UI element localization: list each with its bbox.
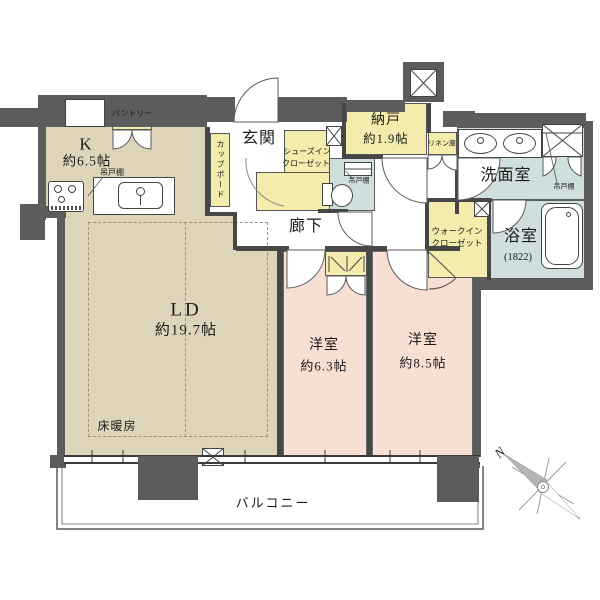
balcony-label: バルコニー xyxy=(236,497,311,510)
compass-icon xyxy=(504,454,580,519)
wall-band-right-of-shaft xyxy=(443,111,475,127)
bedroom1-label: 洋室 xyxy=(309,339,339,353)
bath-label: 浴室 xyxy=(504,229,538,245)
wall-nando-right xyxy=(427,103,431,133)
wall-genkan-top-right xyxy=(277,97,347,122)
bedroom2-area-label: 約8.5帖 xyxy=(399,357,446,370)
bedroom1-closet xyxy=(325,251,367,276)
wall-genkan-top-left xyxy=(205,97,235,122)
shoe-closet-shaft xyxy=(326,126,342,146)
stove-burner-2 xyxy=(68,185,76,193)
wall-right xyxy=(584,121,593,288)
front-door-arc xyxy=(234,78,278,122)
wic-label-1: ウォークイン xyxy=(431,227,482,236)
wall-corridor-washroom xyxy=(455,158,459,214)
shoe-closet-label-1: シューズイン xyxy=(283,148,331,156)
bedroom2-floor xyxy=(372,251,473,456)
wall-nando-bottom xyxy=(343,155,383,159)
bathtub-inner xyxy=(545,207,579,265)
wall-wic-left xyxy=(425,198,429,254)
living-label: LD xyxy=(170,301,201,320)
nando-label: 納戸 xyxy=(371,114,401,128)
kitchen-label: K xyxy=(79,136,92,153)
stove-burner-1 xyxy=(54,185,62,193)
balcony-pillar-right xyxy=(437,456,479,502)
bedroom1-area-label: 約6.3帖 xyxy=(300,360,347,373)
bath-size-label: (1822) xyxy=(504,253,532,264)
kitchen-area-label: 約6.5帖 xyxy=(63,154,112,168)
shoe-closet-label-2: クローゼット xyxy=(282,160,330,168)
wall-living-left xyxy=(57,212,65,464)
wall-bath-bottom xyxy=(473,278,593,290)
living-area-label: 約19.7帖 xyxy=(155,324,217,339)
balcony-pillar-left xyxy=(138,456,198,500)
genkan-label: 玄関 xyxy=(242,131,276,147)
nando-door-arc xyxy=(382,158,427,203)
wall-bedroom1-bedroom2 xyxy=(367,250,372,456)
wall-nando-left xyxy=(342,103,346,159)
corridor-label: 廊下 xyxy=(289,219,323,235)
wall-nando-top xyxy=(343,100,405,112)
floor-plan: K 約6.5帖 パントリー 吊戸棚 カップボード 玄関 シューズイン クローゼッ… xyxy=(0,0,600,600)
toilet-cabinet-label: 吊戸棚 xyxy=(349,178,370,185)
shaft-box xyxy=(410,69,437,97)
wic-corner-box xyxy=(474,201,490,217)
nando-area-label: 約1.9帖 xyxy=(363,133,409,146)
washroom-cabinet xyxy=(542,124,583,157)
stove-burner-3 xyxy=(58,196,65,203)
window-band xyxy=(64,455,480,464)
washroom-label: 洗面室 xyxy=(480,168,531,184)
wall-living-bedroom1 xyxy=(277,250,283,456)
toilet-door-arc xyxy=(338,212,372,246)
wall-toilet-bottom xyxy=(318,209,348,213)
kitchen-faucet-stem xyxy=(140,195,141,205)
vanity-faucet-2 xyxy=(516,137,523,144)
wic-label-2: クローゼット xyxy=(431,239,482,248)
wall-left-stub xyxy=(0,108,38,127)
washroom-cabinet-label: 吊戸棚 xyxy=(554,184,575,191)
pantry-label: パントリー xyxy=(112,110,152,118)
linen-label: リネン庫 xyxy=(428,141,456,148)
wall-living-corridor xyxy=(233,214,237,250)
wall-kitchen-genkan xyxy=(205,127,210,214)
floor-heating-label: 床暖房 xyxy=(97,420,136,432)
vanity-faucet-1 xyxy=(477,137,484,144)
bathtub-drain xyxy=(566,212,571,217)
toilet-shelf xyxy=(344,162,372,176)
shoe-closet-lower xyxy=(256,172,330,211)
stove-grill xyxy=(51,206,81,210)
kitchen-cabinet-label: 吊戸棚 xyxy=(100,169,124,177)
bedroom1-floor xyxy=(283,251,367,456)
cupboard-label: カップボード xyxy=(216,140,224,200)
toilet-bowl xyxy=(331,184,353,207)
bedroom2-label: 洋室 xyxy=(408,334,438,348)
wall-corridor-bottom-2 xyxy=(325,246,387,251)
compass-north-label: N xyxy=(492,444,508,460)
wall-bedroom2-right xyxy=(473,285,481,457)
linen-door-left-arc xyxy=(428,155,442,169)
wall-recess-cabinet xyxy=(65,99,105,127)
